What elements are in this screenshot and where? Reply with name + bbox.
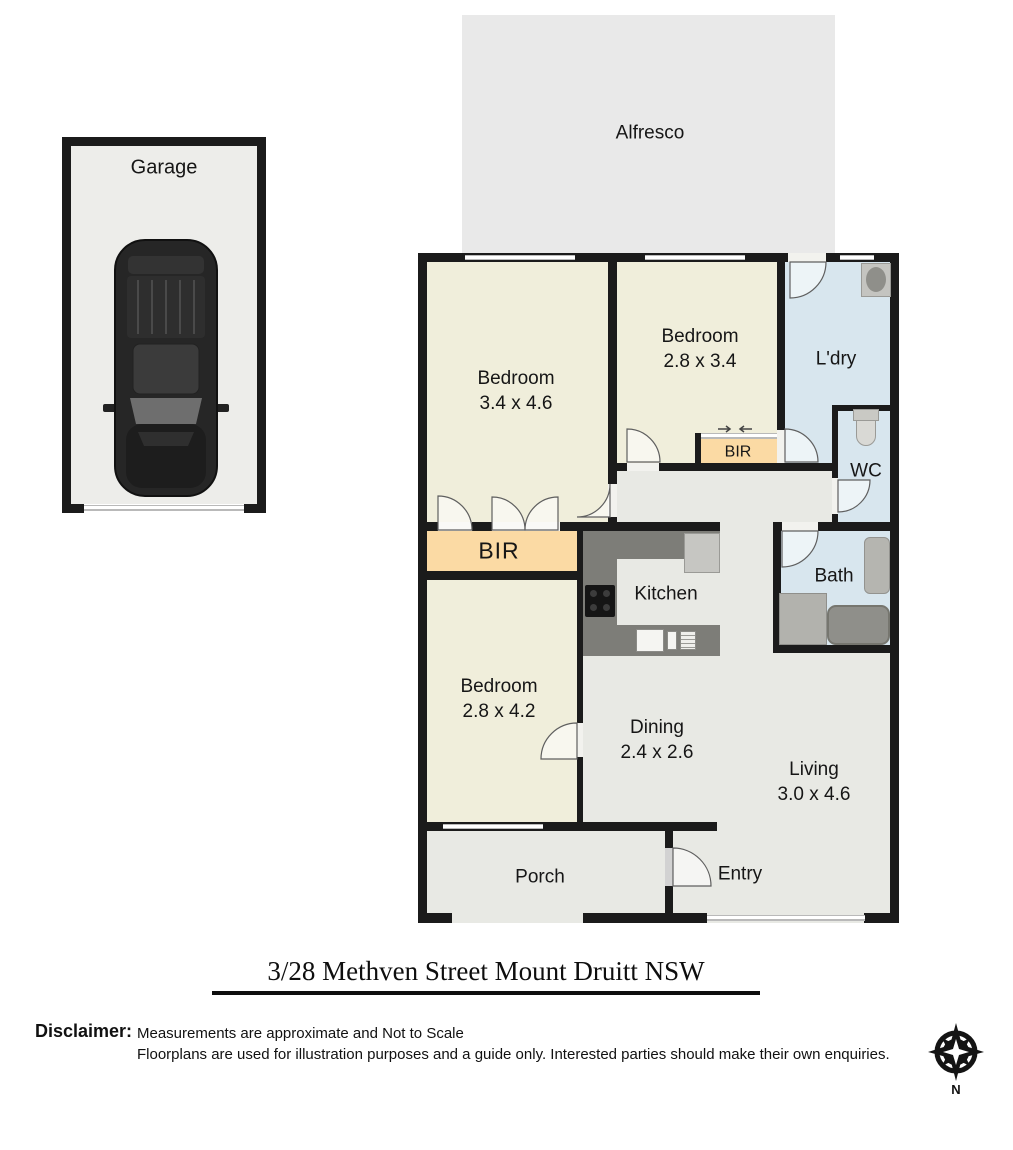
door-gap <box>492 522 560 531</box>
disclaimer-line1: Measurements are approximate and Not to … <box>137 1025 464 1042</box>
bath-label: Bath <box>814 564 853 589</box>
wall <box>257 137 266 513</box>
dining-label: Dining 2.4 x 2.6 <box>621 715 694 765</box>
wall <box>832 514 838 522</box>
wall <box>777 463 785 471</box>
laundry-tub-basin <box>866 267 886 292</box>
door-gap <box>627 463 659 471</box>
door-gap <box>782 522 818 531</box>
door-gap <box>577 723 583 757</box>
fridge <box>684 533 720 573</box>
window <box>840 255 874 260</box>
entry-door-leaf <box>665 848 673 886</box>
wall <box>777 253 785 430</box>
stove-burner <box>603 604 610 611</box>
bedroom1-label: Bedroom 3.4 x 4.6 <box>477 366 554 416</box>
laundry-floor <box>785 405 832 463</box>
compass-rose-icon <box>928 1023 985 1081</box>
wall <box>818 522 899 531</box>
laundry-label: L'dry <box>816 347 857 372</box>
disclaimer-line2: Floorplans are used for illustration pur… <box>137 1046 890 1063</box>
wall <box>864 913 899 923</box>
room-name: Living <box>778 757 851 782</box>
room-dims: 2.8 x 4.2 <box>460 699 537 724</box>
room-name: Bedroom <box>661 324 738 349</box>
wall <box>583 913 707 923</box>
living-label: Living 3.0 x 4.6 <box>778 757 851 807</box>
garage-door <box>84 505 244 511</box>
wall <box>665 822 673 848</box>
wall <box>890 253 899 923</box>
sliding-robe-door <box>701 433 777 439</box>
room-dims: 2.4 x 2.6 <box>621 740 694 765</box>
address-title: 3/28 Methven Street Mount Druitt NSW <box>212 956 760 995</box>
alfresco-label: Alfresco <box>616 121 685 146</box>
door-gap <box>438 522 472 531</box>
kitchen-sink <box>636 629 664 652</box>
floorplan-canvas: Garage Alfresco Bedroom 3.4 x 4.6 Bedroo… <box>0 0 1013 1150</box>
shower <box>779 593 827 645</box>
bedroom3-label: Bedroom 2.8 x 4.2 <box>460 674 537 724</box>
wall <box>665 886 673 913</box>
stove-cooktop <box>585 585 615 617</box>
door-gap <box>777 430 785 463</box>
wall <box>659 463 780 471</box>
compass-north-label: N <box>951 1082 960 1097</box>
disclaimer-heading: Disclaimer: <box>35 1021 132 1042</box>
drain-rack <box>680 631 696 650</box>
wall <box>773 645 899 653</box>
wc-label: WC <box>850 459 882 484</box>
room-dims: 3.4 x 4.6 <box>477 391 554 416</box>
wall <box>472 522 492 531</box>
garage-floor <box>71 146 257 504</box>
vanity-basin <box>864 537 890 594</box>
kitchen-sink <box>667 631 677 650</box>
room-name: Bedroom <box>477 366 554 391</box>
bathtub <box>827 605 890 645</box>
window <box>465 255 575 260</box>
window <box>645 255 745 260</box>
window <box>707 915 865 921</box>
wall <box>418 522 438 531</box>
room-name: Dining <box>621 715 694 740</box>
window <box>443 824 543 829</box>
stove-burner <box>590 590 597 597</box>
wall <box>560 522 720 531</box>
wall <box>62 137 266 146</box>
room-name: Bedroom <box>460 674 537 699</box>
room-dims: 3.0 x 4.6 <box>778 782 851 807</box>
stove-burner <box>603 590 610 597</box>
door-gap <box>788 253 826 262</box>
wall <box>785 463 832 471</box>
room-dims: 2.8 x 3.4 <box>661 349 738 374</box>
entry-label: Entry <box>718 862 762 887</box>
wall <box>62 137 71 513</box>
garage-label: Garage <box>131 156 198 181</box>
wall <box>616 463 627 471</box>
door-gap <box>608 484 617 517</box>
bir-small-label: BIR <box>725 440 752 465</box>
stove-burner <box>590 604 597 611</box>
wall <box>244 504 266 513</box>
bir-main-label: BIR <box>478 539 519 564</box>
wall <box>577 757 583 822</box>
wall <box>418 913 452 923</box>
porch-label: Porch <box>515 865 565 890</box>
kitchen-label: Kitchen <box>634 582 697 607</box>
toilet-bowl <box>856 420 876 446</box>
wall <box>832 405 838 478</box>
bedroom2-label: Bedroom 2.8 x 3.4 <box>661 324 738 374</box>
wall <box>418 571 577 580</box>
door-gap <box>832 478 838 514</box>
wall <box>62 504 84 513</box>
